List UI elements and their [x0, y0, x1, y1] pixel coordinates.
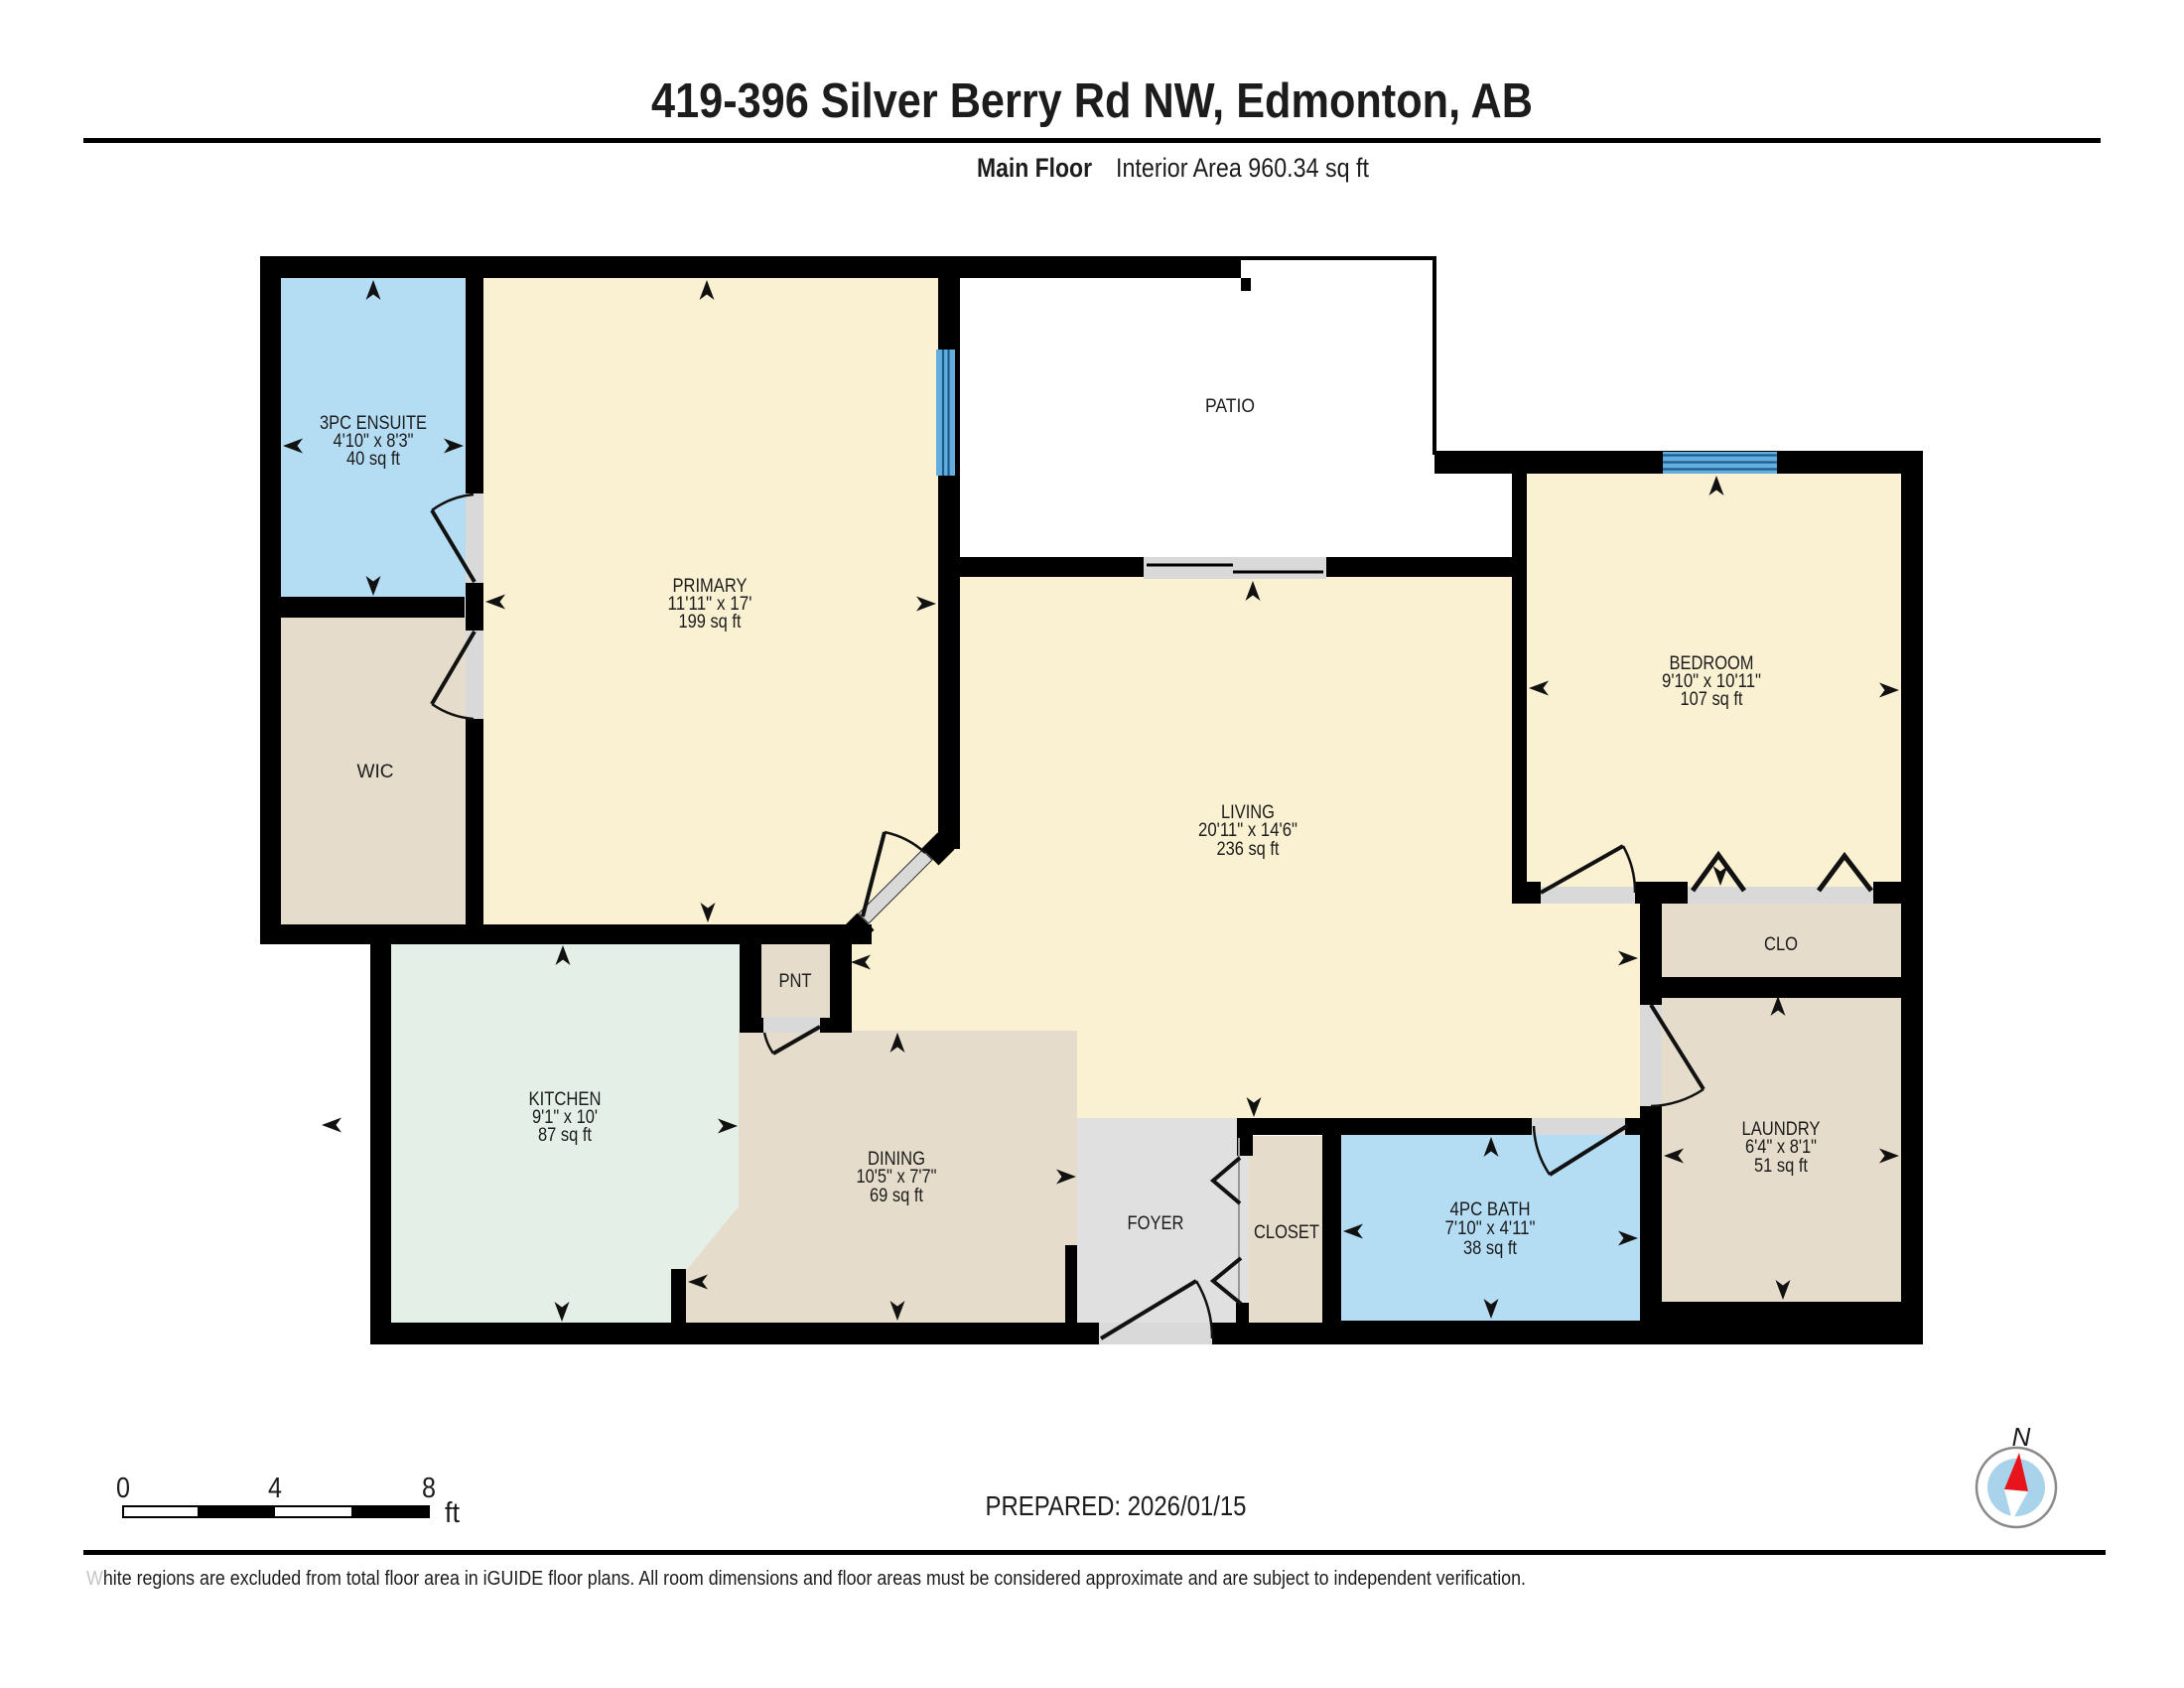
svg-text:87 sq ft: 87 sq ft — [538, 1125, 593, 1146]
svg-text:6'4" x 8'1": 6'4" x 8'1" — [1745, 1137, 1817, 1158]
svg-text:199 sq ft: 199 sq ft — [679, 612, 743, 633]
svg-text:N: N — [2012, 1422, 2031, 1452]
svg-text:7'10" x 4'11": 7'10" x 4'11" — [1445, 1218, 1536, 1239]
svg-text:4PC BATH: 4PC BATH — [1450, 1199, 1531, 1220]
svg-text:419-396 Silver Berry Rd NW, Ed: 419-396 Silver Berry Rd NW, Edmonton, AB — [651, 73, 1533, 128]
svg-text:PREPARED: 2026/01/15: PREPARED: 2026/01/15 — [986, 1490, 1247, 1521]
svg-text:CLO: CLO — [1764, 934, 1798, 955]
svg-text:40 sq ft: 40 sq ft — [346, 449, 401, 470]
svg-text:FOYER: FOYER — [1128, 1213, 1184, 1234]
svg-text:0: 0 — [116, 1473, 130, 1504]
svg-text:10'5" x 7'7": 10'5" x 7'7" — [857, 1167, 937, 1188]
svg-text:8: 8 — [422, 1473, 436, 1504]
svg-text:4: 4 — [268, 1473, 282, 1504]
svg-text:51 sq ft: 51 sq ft — [1754, 1156, 1809, 1177]
svg-text:WIC: WIC — [357, 762, 394, 782]
svg-text:Main Floor: Main Floor — [977, 153, 1092, 183]
svg-text:CLOSET: CLOSET — [1254, 1222, 1319, 1243]
svg-text:Interior Area 960.34 sq ft: Interior Area 960.34 sq ft — [1116, 153, 1370, 183]
svg-text:69 sq ft: 69 sq ft — [870, 1186, 924, 1206]
svg-text:PNT: PNT — [779, 971, 812, 992]
svg-text:ft: ft — [445, 1497, 460, 1529]
svg-text:38 sq ft: 38 sq ft — [1463, 1238, 1518, 1259]
svg-text:107 sq ft: 107 sq ft — [1681, 689, 1744, 710]
svg-text:White regions are excluded fro: White regions are excluded from total fl… — [86, 1567, 1526, 1590]
svg-text:PATIO: PATIO — [1205, 396, 1255, 417]
svg-text:236 sq ft: 236 sq ft — [1217, 839, 1281, 860]
svg-text:20'11" x 14'6": 20'11" x 14'6" — [1198, 820, 1297, 841]
